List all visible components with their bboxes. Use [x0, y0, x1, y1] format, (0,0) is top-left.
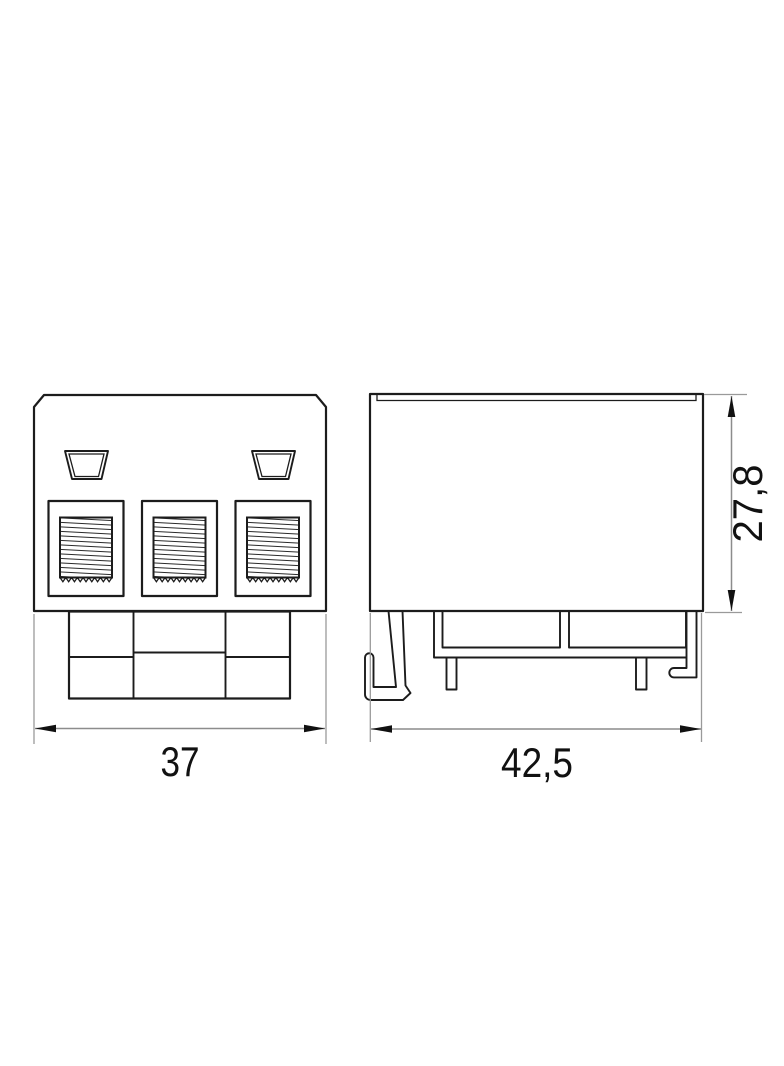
din-latch-right: [669, 611, 696, 677]
dimension-label-side-width: 42,5: [501, 739, 573, 786]
dimension-label-front-width: 37: [161, 738, 200, 785]
arrowhead-left: [371, 725, 392, 733]
dimension-label-side-height: 27,8: [724, 465, 771, 543]
front-view: 37: [34, 395, 326, 785]
arrowhead-bottom: [728, 590, 736, 611]
side-housing-outline: [370, 394, 703, 611]
base-recess-right: [569, 611, 686, 648]
dimension-side-width: 42,5: [370, 613, 701, 786]
base-foot-left: [447, 658, 457, 690]
arrowhead-right: [304, 725, 325, 733]
base-foot-right: [636, 658, 647, 690]
side-view: 42,5 27,8: [365, 394, 771, 786]
arrowhead-left: [35, 725, 56, 733]
technical-drawing-page: 37: [0, 0, 784, 1066]
base-recess-left: [443, 611, 561, 648]
arrowhead-right: [680, 725, 701, 733]
front-base-grid: [69, 612, 290, 699]
terminal-block-drawing: 37: [0, 0, 784, 1066]
dimension-side-height: 27,8: [704, 395, 771, 613]
arrowhead-top: [728, 396, 736, 417]
din-claw-left: [365, 611, 411, 700]
